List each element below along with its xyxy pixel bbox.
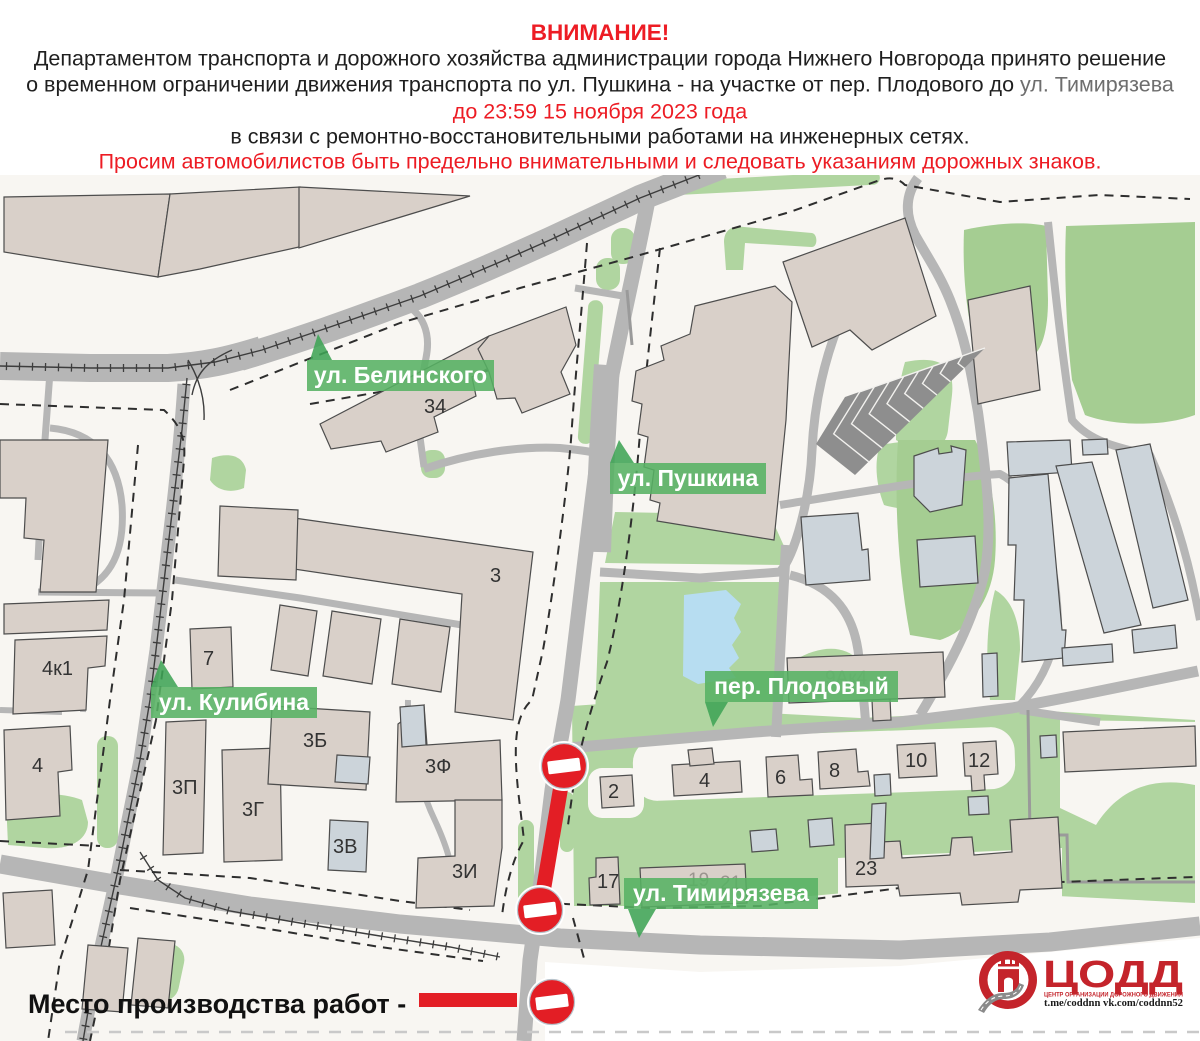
svg-text:о временном ограничении движен: о временном ограничении движения транспо…	[26, 73, 1174, 97]
svg-text:пер. Плодовый: пер. Плодовый	[714, 673, 889, 699]
svg-text:12: 12	[968, 750, 990, 772]
svg-text:3Ф: 3Ф	[425, 756, 451, 778]
svg-text:3Б: 3Б	[303, 730, 327, 752]
svg-text:3И: 3И	[452, 861, 478, 883]
svg-text:до 23:59 15 ноября 2023 года: до 23:59 15 ноября 2023 года	[453, 100, 747, 124]
svg-text:4: 4	[32, 755, 43, 777]
svg-text:ул. Кулибина: ул. Кулибина	[159, 689, 309, 715]
svg-text:ул. Пушкина: ул. Пушкина	[618, 465, 759, 491]
svg-text:3Г: 3Г	[242, 799, 264, 821]
svg-text:t.me/coddnn vk.com/coddnn52: t.me/coddnn vk.com/coddnn52	[1044, 997, 1183, 1009]
svg-text:ул. Белинского: ул. Белинского	[314, 362, 487, 388]
svg-text:8: 8	[829, 760, 840, 782]
svg-text:17: 17	[597, 871, 619, 893]
svg-text:3: 3	[490, 565, 501, 587]
svg-text:в связи с ремонтно-восстановит: в связи с ремонтно-восстановительными ра…	[230, 125, 969, 149]
svg-text:3В: 3В	[333, 836, 357, 858]
svg-text:3П: 3П	[172, 777, 198, 799]
svg-text:7: 7	[203, 648, 214, 670]
svg-text:Просим автомобилистов быть пре: Просим автомобилистов быть предельно вни…	[99, 150, 1102, 174]
svg-text:34: 34	[424, 396, 446, 418]
svg-text:10: 10	[905, 750, 927, 772]
svg-text:4к1: 4к1	[42, 658, 73, 680]
svg-text:23: 23	[855, 858, 877, 880]
svg-text:2: 2	[608, 781, 619, 803]
svg-text:ул. Тимирязева: ул. Тимирязева	[633, 880, 809, 906]
svg-text:6: 6	[775, 767, 786, 789]
svg-text:Место производства работ -: Место производства работ -	[28, 989, 406, 1019]
svg-text:ЦОДД: ЦОДД	[1043, 954, 1183, 996]
svg-text:Департаментом транспорта и дор: Департаментом транспорта и дорожного хоз…	[34, 47, 1166, 71]
svg-text:4: 4	[699, 770, 710, 792]
svg-text:ВНИМАНИЕ!: ВНИМАНИЕ!	[531, 20, 670, 45]
